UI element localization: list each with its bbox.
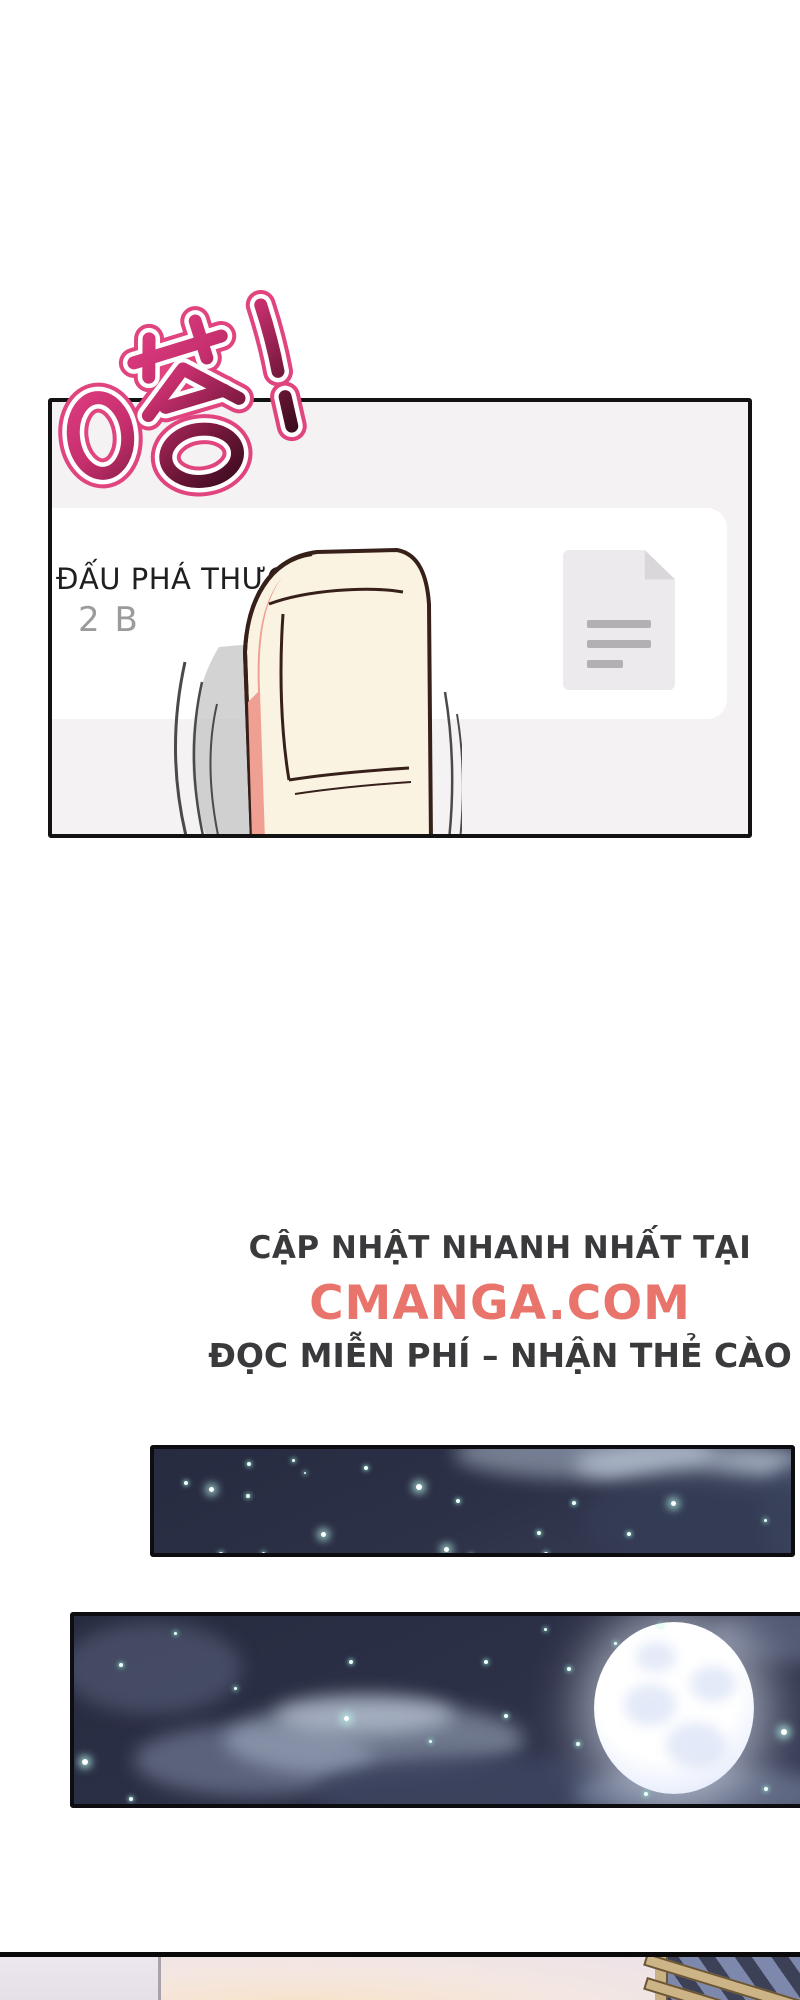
star xyxy=(321,1532,326,1537)
document-icon-line xyxy=(587,660,623,668)
star xyxy=(262,1552,265,1555)
star xyxy=(349,1660,353,1664)
promo-line1: CẬP NHẬT NHANH NHẤT TẠI xyxy=(150,1230,800,1266)
finger-illustration xyxy=(157,542,462,838)
star xyxy=(781,1729,787,1735)
star xyxy=(456,1499,460,1503)
star xyxy=(219,1552,223,1556)
star xyxy=(444,1547,449,1552)
app-subtitle: 2 B xyxy=(78,600,140,640)
star xyxy=(567,1667,571,1671)
night-sky-panel-1 xyxy=(150,1445,795,1557)
promo-line3: ĐỌC MIỄN PHÍ – NHẬN THẺ CÀO xyxy=(150,1336,800,1375)
sfx-tap-glyph xyxy=(45,276,342,542)
star xyxy=(429,1740,432,1743)
star xyxy=(644,1792,648,1796)
star xyxy=(614,1642,617,1645)
wall-with-glow xyxy=(161,1957,655,2000)
night-sky-panel-2 xyxy=(70,1612,800,1808)
sfx-tap-text xyxy=(45,276,342,542)
star xyxy=(174,1632,177,1635)
star xyxy=(82,1759,88,1765)
star xyxy=(764,1787,768,1791)
star xyxy=(304,1472,306,1474)
document-icon xyxy=(563,550,675,690)
star xyxy=(764,1519,767,1522)
star xyxy=(671,1501,676,1506)
star xyxy=(416,1484,422,1490)
manga-page: ĐẤU PHÁ THƯƠN 2 B xyxy=(0,0,800,2000)
wall-left xyxy=(0,1957,158,2000)
star xyxy=(544,1552,548,1556)
star xyxy=(576,1742,580,1746)
star xyxy=(292,1459,295,1462)
cloud xyxy=(70,1622,242,1714)
window xyxy=(655,1957,800,2000)
star xyxy=(247,1462,251,1466)
star xyxy=(184,1481,188,1485)
star xyxy=(544,1628,547,1631)
promo-site-url: CMANGA.COM xyxy=(150,1276,800,1331)
star xyxy=(469,1554,473,1557)
document-icon-line xyxy=(587,620,651,628)
star xyxy=(129,1797,133,1801)
star xyxy=(484,1660,488,1664)
moon-crater xyxy=(624,1684,676,1726)
star xyxy=(344,1716,349,1721)
star xyxy=(504,1714,508,1718)
star xyxy=(119,1663,123,1667)
star xyxy=(572,1501,576,1505)
cloud xyxy=(274,1694,454,1734)
moon-crater xyxy=(666,1722,726,1768)
star xyxy=(627,1532,631,1536)
document-icon-line xyxy=(587,640,651,648)
bottom-room-panel xyxy=(0,1952,800,2000)
star xyxy=(659,1624,662,1627)
moon xyxy=(594,1622,754,1794)
moon-crater xyxy=(690,1666,736,1702)
star xyxy=(234,1687,237,1690)
star xyxy=(246,1494,250,1498)
moon-crater xyxy=(636,1642,676,1672)
star xyxy=(364,1466,368,1470)
star xyxy=(537,1531,541,1535)
star xyxy=(209,1487,214,1492)
